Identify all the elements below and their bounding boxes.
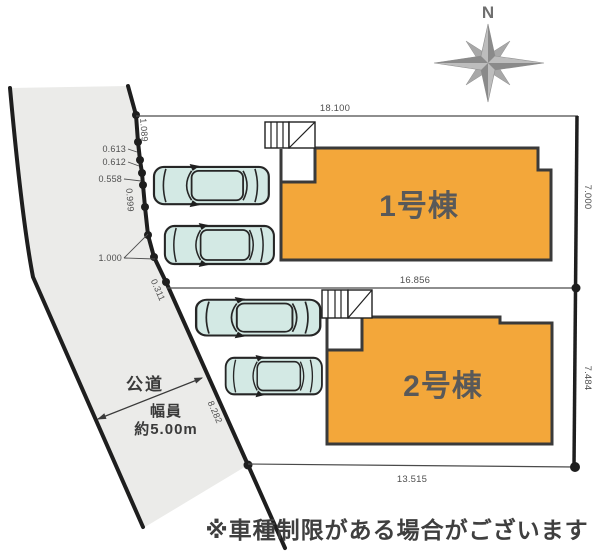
dim-boundary-seg2: 0.613 — [102, 144, 126, 154]
dim-lot2-bottom-width: 13.515 — [397, 474, 427, 485]
car-icon — [154, 164, 269, 207]
building-2: 2号棟 — [322, 290, 552, 444]
car-icon — [196, 297, 320, 338]
road-name-label: 公道 — [126, 374, 164, 394]
stairs-2-icon — [322, 290, 372, 318]
compass: N — [434, 3, 544, 102]
stairs-1-icon — [265, 122, 315, 148]
car-icon — [226, 355, 322, 397]
site-plan: 1号棟 2号棟 18.100 7.000 16.856 7.484 13.515… — [0, 0, 600, 553]
dim-boundary-seg4: 0.558 — [98, 174, 122, 184]
north-label: N — [482, 3, 494, 22]
building-2-label: 2号棟 — [403, 370, 483, 403]
lot2-bottom-line — [248, 464, 575, 467]
dim-boundary-seg6: 1.000 — [98, 253, 122, 263]
road-width-caption: 幅員 — [150, 402, 182, 420]
dim-lot2-width: 16.856 — [400, 275, 430, 286]
dim-boundary-seg1: 1.089 — [138, 118, 150, 142]
caption-note: ※車種制限がある場合がございます — [205, 517, 588, 543]
building-1-label: 1号棟 — [379, 190, 459, 223]
road-width-value: 約5.00m — [134, 420, 198, 438]
dim-lot2-depth: 7.484 — [582, 366, 593, 391]
dim-boundary-seg5: 0.999 — [124, 188, 136, 212]
dim-boundary-seg3: 0.612 — [102, 157, 126, 167]
dim-lot1-depth: 7.000 — [582, 185, 593, 210]
dim-lot1-width: 18.100 — [320, 103, 350, 114]
car-icon — [165, 223, 274, 267]
building-1: 1号棟 — [265, 122, 551, 260]
